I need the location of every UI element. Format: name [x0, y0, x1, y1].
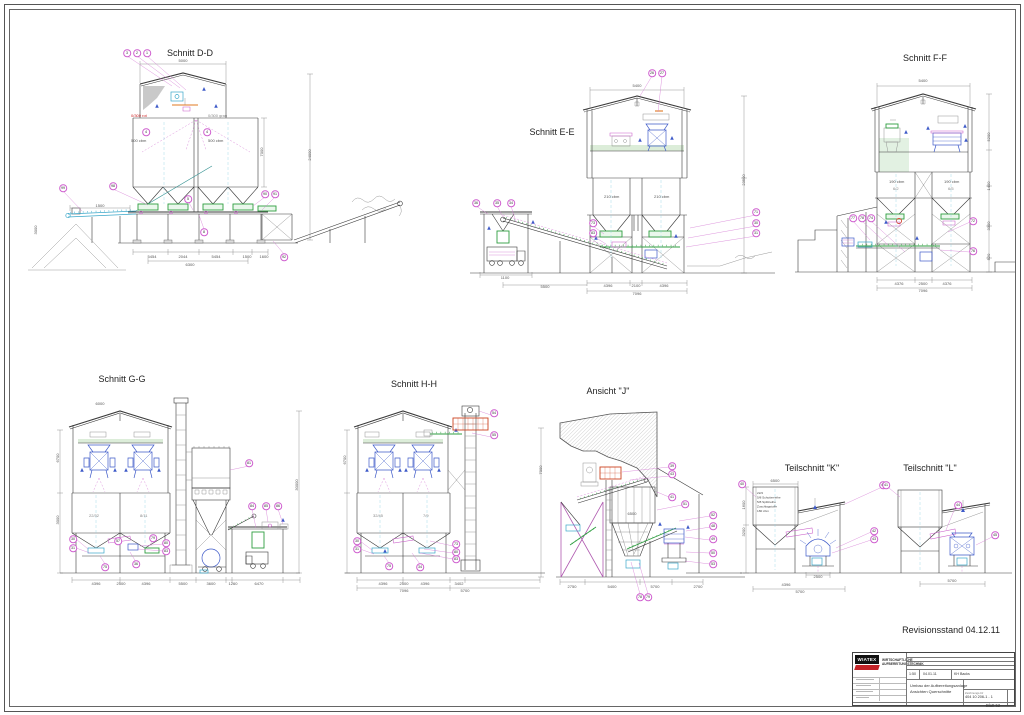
schnitt-ee-drawing: 210 cbm 210 cbm — [455, 65, 775, 305]
company-logo-red-band — [854, 665, 880, 670]
bin-text-block: 22/4 5/8 Schotterreihe 5/8 Splittreihe Z… — [757, 491, 781, 513]
drawing-sheet: Schnitt D-D Schnitt E-E Schnitt F-F Schn… — [0, 0, 1024, 715]
drawing-no-label: Zeichnungs-Nr — [965, 691, 983, 695]
bin-code-left: 22/32 — [89, 513, 100, 518]
svg-text:Zuschlagstoffe: Zuschlagstoffe — [757, 505, 777, 509]
ansicht-j-drawing — [535, 385, 745, 610]
bin-code-right: 6/5 — [948, 186, 954, 191]
sheet-number: Blatt 52 — [986, 703, 1000, 708]
svg-text:22/4: 22/4 — [757, 491, 763, 495]
company-logo: WIATEX — [855, 655, 879, 664]
teilschnitt-l-drawing — [880, 460, 1020, 605]
date-value: 04.01.11 — [923, 672, 937, 676]
schnitt-hh-drawing: 32/45 7/9 — [335, 378, 550, 610]
schnitt-ff-drawing: 190 cbm 190 cbm 6/2 6/5 — [795, 50, 1020, 300]
project-title-line2: Ansichten Querschnitte — [910, 689, 951, 694]
bin-label-right: 210 cbm — [654, 194, 670, 199]
project-title-line1: Umbau der Aufbereitungsanlage — [910, 683, 967, 688]
author-name: KH Backs — [954, 672, 970, 676]
bin-code-left: 32/45 — [373, 513, 384, 518]
bin-code-right: 7/9 — [423, 513, 429, 518]
bin-label-left: 210 cbm — [604, 194, 620, 199]
silo-label-vol-right: 500 cbm — [208, 138, 224, 143]
silo-label-type-right: 0/300 grau — [208, 113, 227, 118]
bin-label-right: 190 cbm — [944, 179, 960, 184]
revision-note: Revisionsstand 04.12.11 — [855, 625, 1000, 635]
svg-text:5/8 Schotterreihe: 5/8 Schotterreihe — [757, 496, 781, 500]
schnitt-gg-drawing: 22/32 8/11 — [45, 375, 310, 610]
teilschnitt-k-drawing: 22/4 5/8 Schotterreihe 5/8 Splittreihe Z… — [730, 460, 890, 605]
scale-value: 1:50 — [909, 672, 916, 676]
bin-code-left: 6/2 — [893, 186, 899, 191]
svg-text:180 cbm: 180 cbm — [757, 509, 769, 513]
silo-label-vol-left: 500 cbm — [131, 138, 147, 143]
schnitt-dd-drawing: 0/300 rot 500 cbm 0/300 grau 500 cbm — [25, 40, 425, 295]
title-block: WIATEX WIRTSCHAFTLICHE AUFBEREITUNGSTECH… — [852, 652, 1015, 706]
bin-code-right: 8/11 — [140, 513, 148, 518]
bin-label-left: 190 cbm — [889, 179, 905, 184]
svg-text:5/8 Splittreihe: 5/8 Splittreihe — [757, 500, 776, 504]
drawing-no-value: 404 10 206-1 - 1 — [965, 695, 993, 699]
silo-label-type-left: 0/300 rot — [131, 113, 148, 118]
